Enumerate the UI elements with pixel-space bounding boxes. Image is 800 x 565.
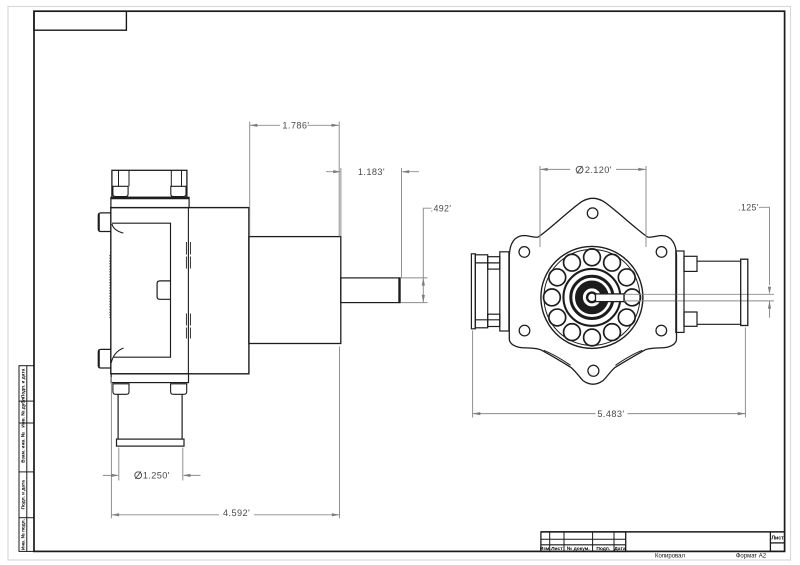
svg-text:Взам. инв. №: Взам. инв. № bbox=[21, 432, 26, 463]
svg-text:Подп. и дата: Подп. и дата bbox=[21, 368, 26, 398]
svg-text:Подп.: Подп. bbox=[596, 546, 610, 552]
svg-text:Инв. № дубл.: Инв. № дубл. bbox=[20, 397, 26, 428]
svg-text:Изм.: Изм. bbox=[540, 546, 551, 552]
svg-text:4.592': 4.592' bbox=[223, 508, 250, 518]
svg-text:Формат А2: Формат А2 bbox=[736, 553, 767, 559]
svg-text:.125': .125' bbox=[738, 203, 759, 213]
svg-text:Лист: Лист bbox=[771, 536, 784, 542]
svg-text:Подп. и дата: Подп. и дата bbox=[21, 480, 26, 510]
svg-text:1.250': 1.250' bbox=[143, 471, 170, 481]
svg-text:Дата: Дата bbox=[614, 546, 626, 552]
svg-text:Инв. № подл.: Инв. № подл. bbox=[21, 519, 26, 550]
svg-text:Лист: Лист bbox=[551, 546, 563, 552]
svg-text:1.786': 1.786' bbox=[282, 121, 309, 131]
svg-text:2.120': 2.120' bbox=[585, 165, 612, 175]
svg-text:1.183': 1.183' bbox=[358, 167, 385, 177]
svg-text:5.483': 5.483' bbox=[597, 409, 624, 419]
svg-text:№ докум.: № докум. bbox=[567, 546, 591, 552]
svg-text:Копировал: Копировал bbox=[655, 553, 686, 559]
svg-text:.492': .492' bbox=[431, 203, 452, 213]
